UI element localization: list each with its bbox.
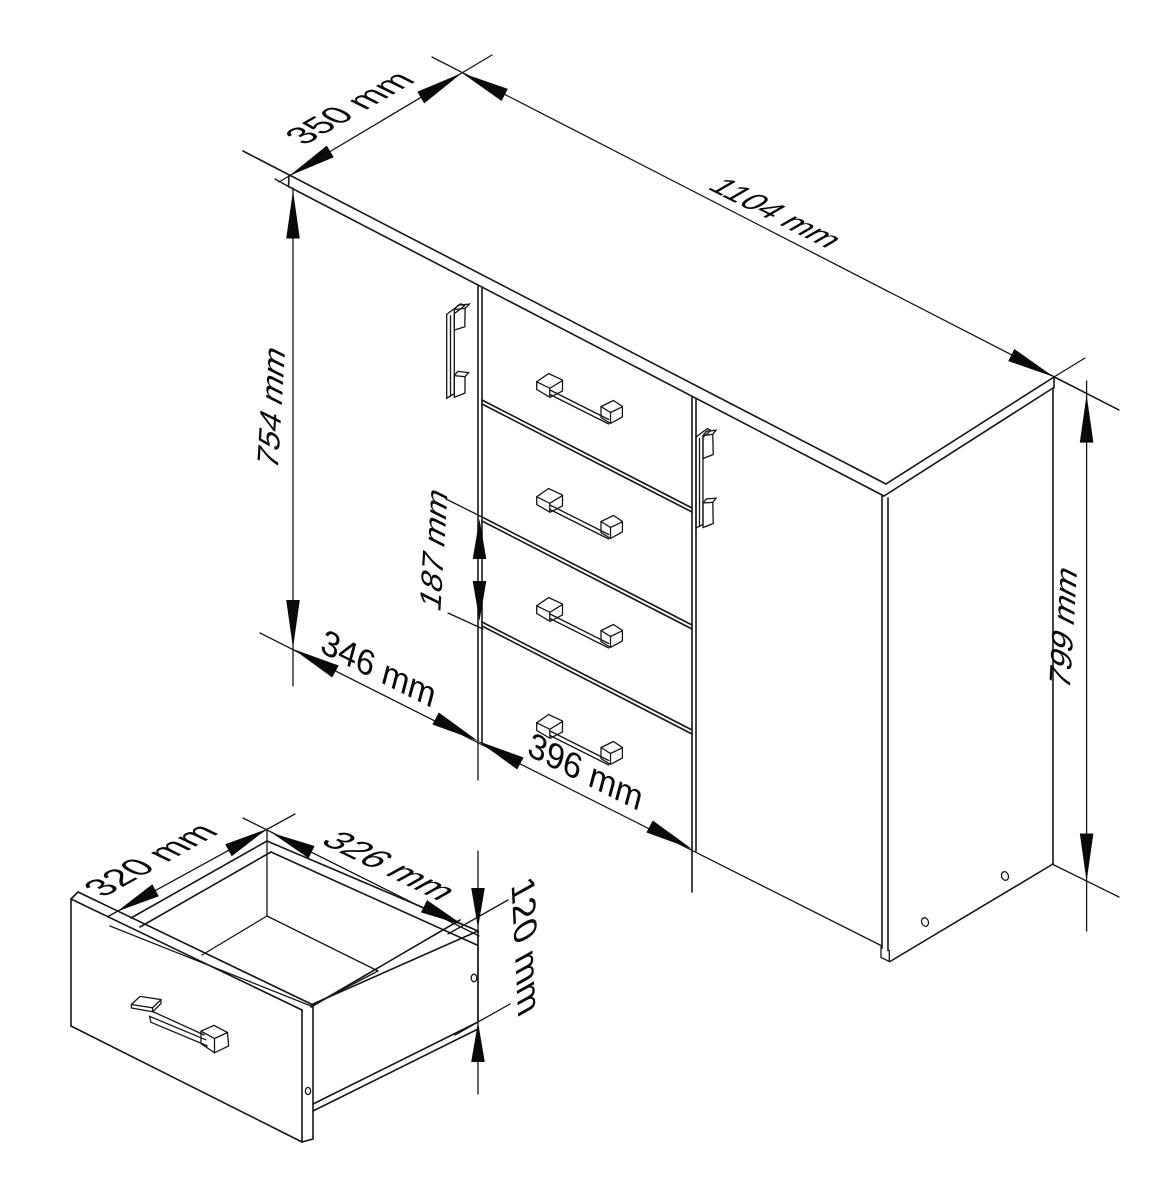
svg-text:120 mm: 120 mm bbox=[505, 869, 548, 1022]
svg-text:799 mm: 799 mm bbox=[1043, 559, 1083, 694]
svg-text:754 mm: 754 mm bbox=[251, 339, 291, 474]
svg-text:187 mm: 187 mm bbox=[413, 481, 453, 616]
